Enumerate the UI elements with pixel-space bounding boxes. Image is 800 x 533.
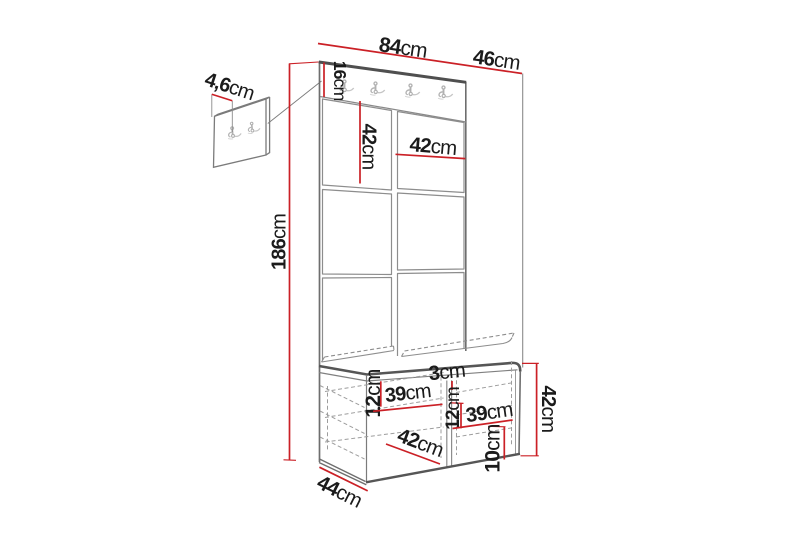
svg-text:3cm: 3cm: [428, 359, 467, 386]
svg-text:10cm: 10cm: [482, 424, 505, 472]
svg-text:42cm: 42cm: [358, 124, 380, 170]
svg-text:186cm: 186cm: [269, 214, 291, 270]
svg-text:12cm: 12cm: [443, 387, 464, 430]
svg-text:16cm: 16cm: [330, 61, 350, 101]
svg-text:42cm: 42cm: [537, 385, 560, 432]
svg-text:42cm: 42cm: [409, 133, 458, 160]
